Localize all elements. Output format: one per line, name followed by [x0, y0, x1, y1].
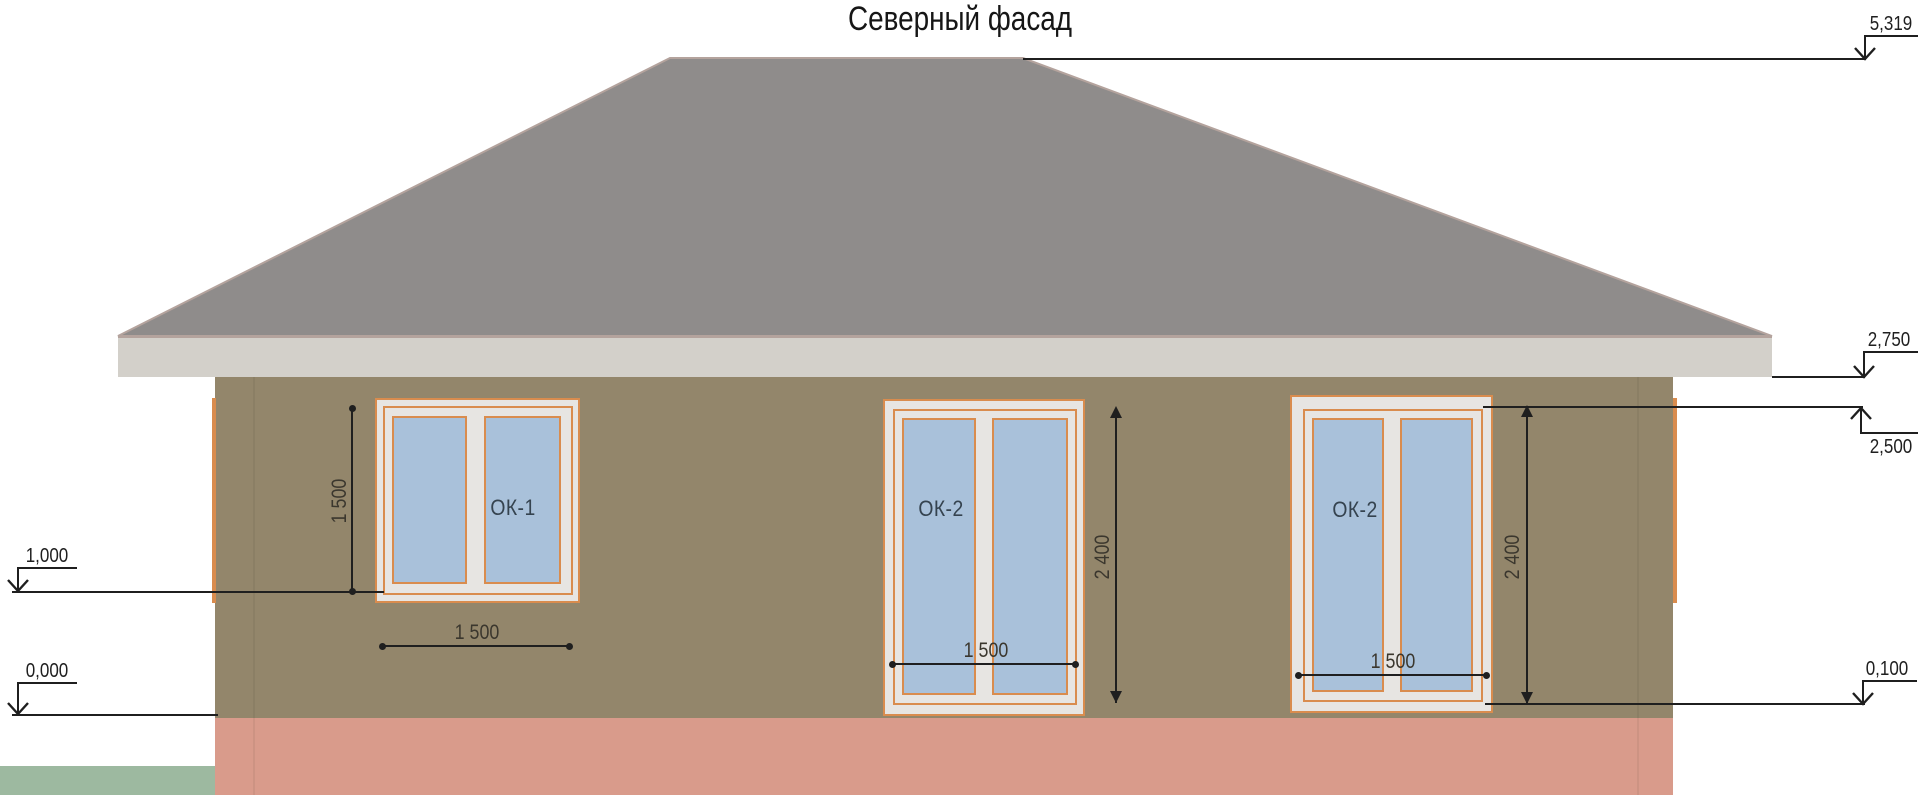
window-label-ok1: ОК-1 — [484, 495, 542, 521]
dim-end — [889, 661, 896, 668]
dim-line-ok2c-width — [892, 663, 1078, 665]
dim-ok2c-height: 2 400 — [1091, 523, 1115, 591]
dim-end — [1483, 672, 1490, 679]
level-value-eave: 2,750 — [1864, 329, 1913, 352]
window-glass-left — [392, 416, 467, 584]
dim-end — [1110, 406, 1122, 418]
level-arrow-down — [6, 578, 30, 593]
dim-line-ok2r-height — [1526, 407, 1528, 704]
plinth-socle — [215, 718, 1673, 795]
level-value-ground-floor: 0,000 — [21, 660, 74, 683]
side-window-edge-right — [1673, 398, 1677, 603]
level-line-ridge — [1023, 58, 1866, 60]
dim-end — [566, 643, 573, 650]
level-line-window-head — [1483, 406, 1863, 408]
dim-line-ok1-width — [382, 645, 572, 647]
roof-polygon — [118, 58, 1772, 336]
ground-strip — [0, 766, 215, 795]
dim-line-ok2r-width — [1298, 674, 1488, 676]
level-value-window-head: 2,500 — [1866, 436, 1915, 459]
window-label-ok2-right: ОК-2 — [1326, 497, 1384, 523]
dim-end — [379, 643, 386, 650]
roof-fascia — [118, 336, 1772, 377]
level-arrow-down — [1851, 691, 1875, 706]
dim-end — [1110, 691, 1122, 703]
wall-corner-seam-left — [253, 377, 255, 795]
level-arrow-down — [1853, 46, 1877, 61]
dim-line-ok2c-height — [1115, 408, 1117, 703]
level-value-ok1-sill: 1,000 — [21, 545, 74, 568]
level-arrow-down — [6, 701, 30, 716]
wall-corner-seam-right — [1637, 377, 1639, 795]
dim-ok1-width: 1 500 — [443, 621, 511, 645]
side-window-edge-left — [212, 398, 216, 603]
elevation-drawing: Северный фасад ОК-1 ОК-2 ОК-2 1 500 — [0, 0, 1920, 795]
dim-ok1-height: 1 500 — [328, 467, 352, 535]
level-line-ok2-sill — [1485, 703, 1865, 705]
dim-end — [1072, 661, 1079, 668]
dim-end — [349, 405, 356, 412]
level-arrow-up — [1849, 406, 1873, 421]
level-line-ground-floor — [12, 714, 218, 716]
dim-ok2r-width: 1 500 — [1359, 650, 1427, 674]
level-value-ridge: 5,319 — [1866, 13, 1915, 36]
dim-ok2r-height: 2 400 — [1501, 523, 1525, 591]
level-arrow-down — [1852, 364, 1876, 379]
dim-end — [1295, 672, 1302, 679]
dim-ok2c-width: 1 500 — [952, 639, 1020, 663]
level-shelf — [1860, 432, 1918, 434]
window-label-ok2-center: ОК-2 — [912, 496, 970, 522]
level-line-ok1-sill — [12, 591, 384, 593]
level-value-ok2-sill: 0,100 — [1862, 658, 1911, 681]
